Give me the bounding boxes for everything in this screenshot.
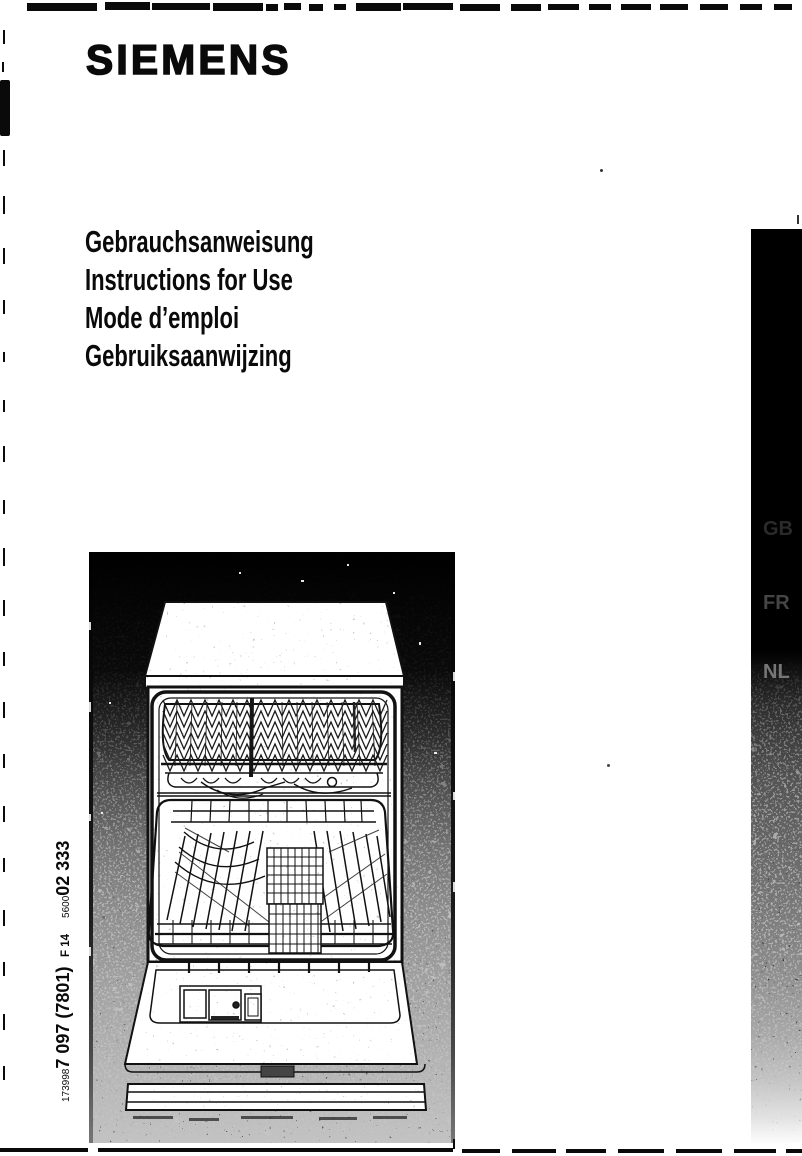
svg-text:GB: GB xyxy=(763,518,793,540)
svg-text:NL: NL xyxy=(763,661,790,683)
svg-text:FR: FR xyxy=(763,592,790,614)
